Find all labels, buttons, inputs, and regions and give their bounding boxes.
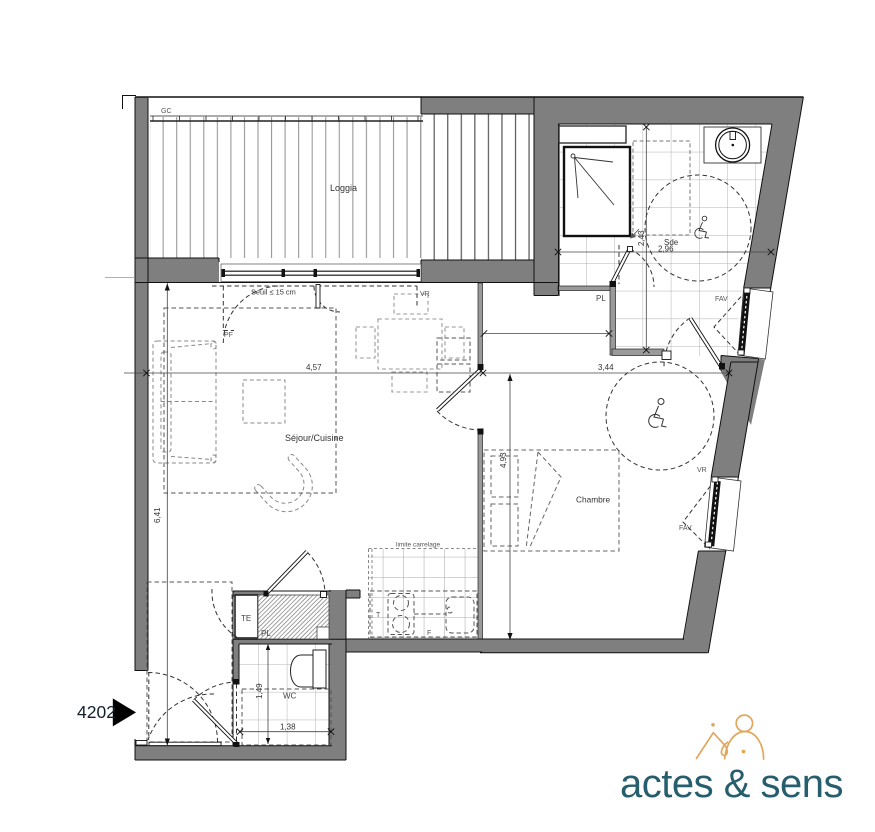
svg-text:2,43: 2,43 [637, 230, 646, 246]
svg-text:F: F [427, 630, 431, 637]
svg-text:4,93: 4,93 [499, 452, 508, 468]
svg-text:PF: PF [224, 332, 233, 339]
svg-text:GC: GC [161, 108, 172, 115]
svg-text:4202: 4202 [77, 702, 116, 722]
svg-text:VR: VR [420, 291, 430, 298]
svg-text:PL: PL [261, 629, 271, 638]
svg-text:Seuil ≤ 15 cm: Seuil ≤ 15 cm [251, 288, 296, 297]
svg-text:TE: TE [241, 614, 251, 623]
svg-text:FAV: FAV [715, 296, 728, 303]
svg-text:1,38: 1,38 [280, 723, 296, 732]
svg-text:FAV: FAV [679, 525, 692, 532]
svg-text:actes & sens: actes & sens [620, 762, 843, 806]
svg-text:6,41: 6,41 [153, 507, 162, 523]
svg-text:4,57: 4,57 [306, 363, 322, 372]
svg-text:3,44: 3,44 [598, 363, 614, 372]
svg-text:Chambre: Chambre [576, 495, 611, 505]
svg-text:WC: WC [283, 692, 297, 701]
svg-text:1,49: 1,49 [255, 683, 264, 699]
svg-text:limite carrelage: limite carrelage [396, 542, 440, 549]
svg-text:Loggia: Loggia [330, 183, 357, 193]
svg-text:Séjour/Cuisine: Séjour/Cuisine [285, 433, 344, 443]
svg-text:VR: VR [697, 467, 707, 474]
svg-text:PL: PL [596, 294, 606, 303]
svg-text:T: T [376, 612, 381, 619]
svg-text:2,96: 2,96 [658, 245, 674, 254]
